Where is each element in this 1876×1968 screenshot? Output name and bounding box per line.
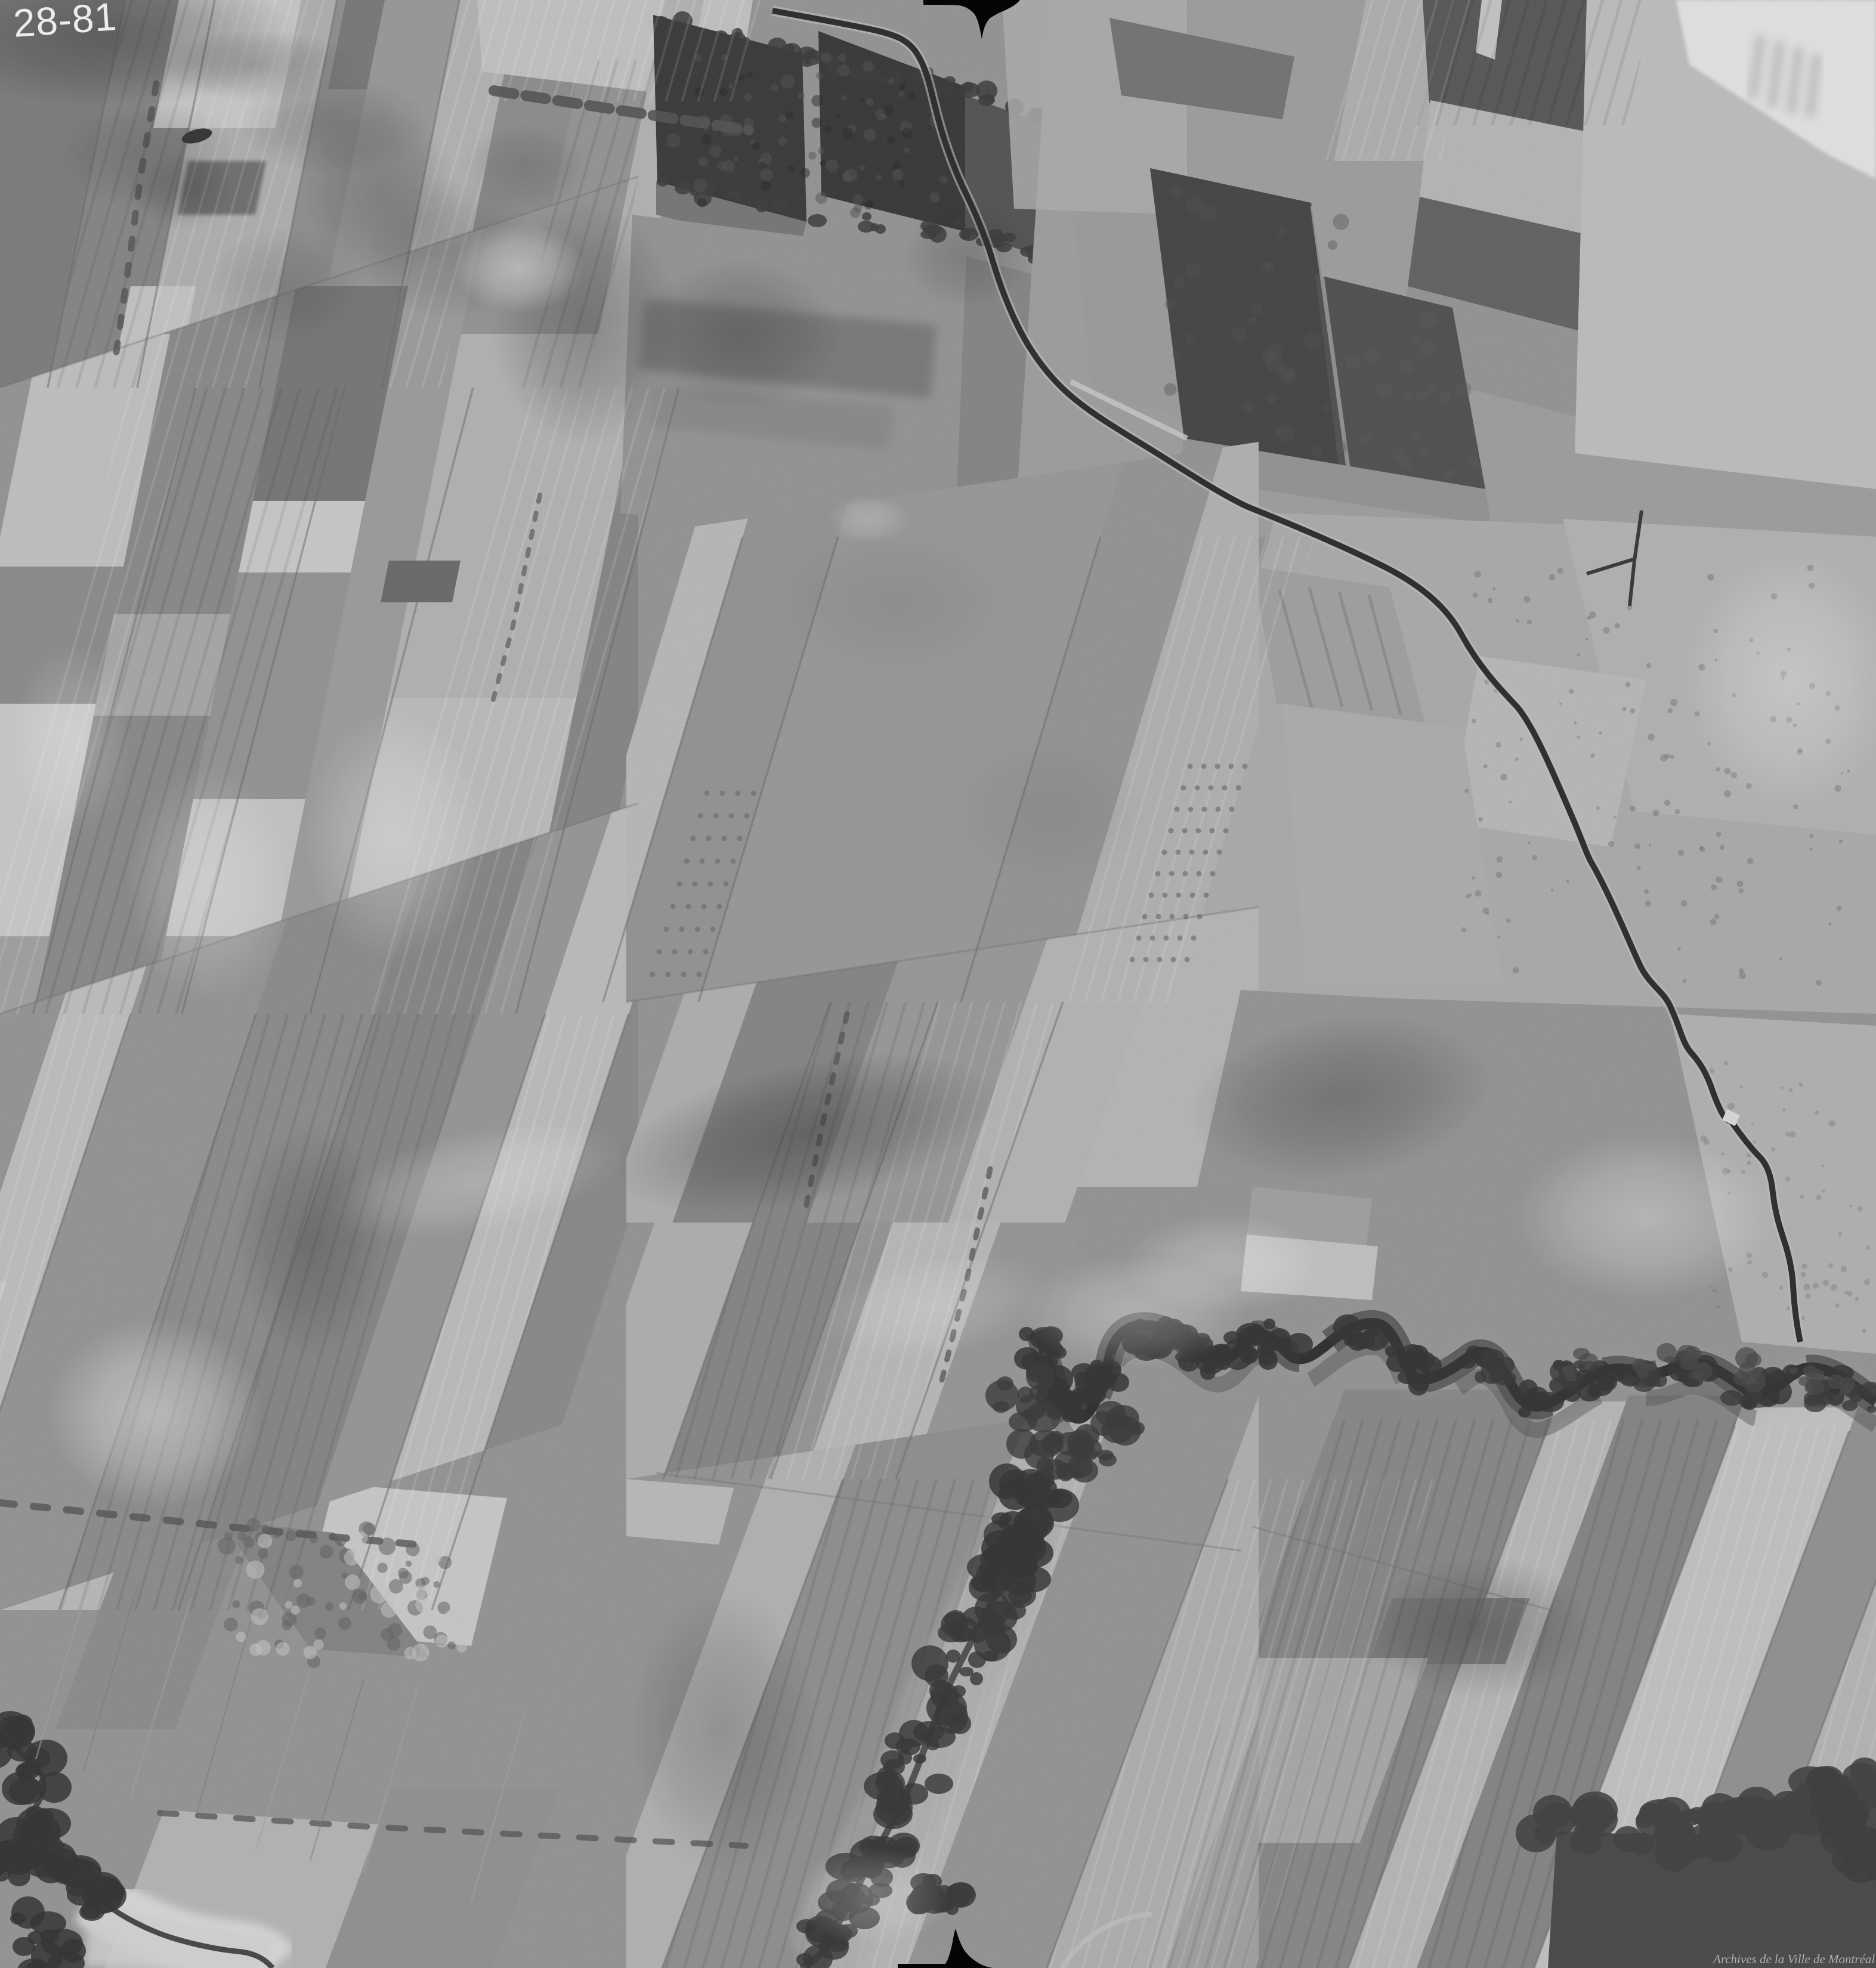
svg-text:Archives de la Ville de Montré: Archives de la Ville de Montréal	[1712, 1952, 1875, 1966]
svg-text:28-81: 28-81	[12, 0, 119, 45]
